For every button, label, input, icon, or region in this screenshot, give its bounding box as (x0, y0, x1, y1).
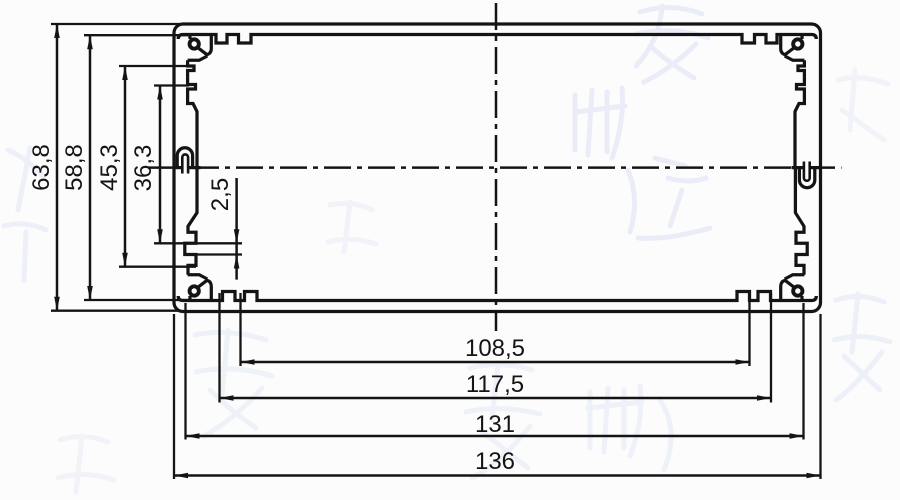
svg-text:131: 131 (475, 411, 515, 438)
svg-text:108,5: 108,5 (465, 335, 525, 362)
svg-text:2,5: 2,5 (207, 178, 234, 211)
svg-text:136: 136 (475, 448, 515, 475)
svg-text:63,8: 63,8 (28, 144, 55, 191)
svg-text:36,3: 36,3 (130, 145, 157, 192)
svg-text:117,5: 117,5 (466, 371, 524, 398)
svg-text:58,8: 58,8 (61, 144, 88, 191)
svg-text:45,3: 45,3 (96, 144, 123, 191)
